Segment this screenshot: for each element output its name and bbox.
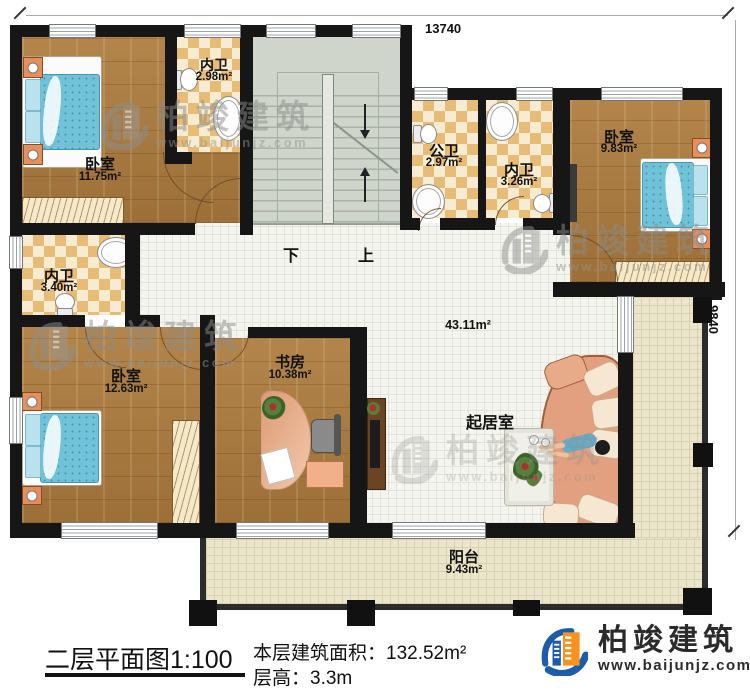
- floor-area-label: 本层建筑面积：: [253, 643, 386, 664]
- room-area: 10.38m²: [269, 369, 312, 381]
- pillow: [25, 79, 41, 111]
- room-area: 2.98m²: [196, 71, 232, 83]
- pillow: [25, 446, 41, 478]
- balcony-pillar: [693, 443, 713, 467]
- room-area: 43.11m²: [445, 318, 491, 332]
- wall: [553, 282, 725, 297]
- pillow: [25, 414, 41, 446]
- wall: [10, 223, 195, 235]
- window: [185, 25, 240, 37]
- wall: [710, 88, 722, 300]
- floor-area-value: 132.52m²: [386, 643, 466, 664]
- room-label: 起居室: [466, 409, 514, 433]
- floor-area-line: 本层建筑面积：132.52m²: [253, 638, 466, 665]
- room-area: 11.75m²: [79, 171, 121, 183]
- wall: [485, 523, 635, 538]
- dimension-tick: [728, 525, 741, 538]
- stairs-down-label: 下: [283, 242, 299, 266]
- wall: [400, 100, 412, 230]
- room-area: 3.40m²: [41, 282, 77, 294]
- room-area: 12.63m²: [105, 383, 148, 395]
- wall: [440, 218, 495, 230]
- balcony-wall: [200, 538, 206, 608]
- wall: [350, 338, 367, 523]
- window: [237, 523, 328, 538]
- plan-scale: 1:100: [170, 646, 233, 674]
- room-area: 3.26m²: [501, 176, 537, 188]
- pillow: [693, 165, 708, 195]
- balcony-pillar: [513, 600, 540, 616]
- window: [415, 88, 447, 100]
- company-website: www.baijunjz.com: [598, 657, 750, 674]
- dimension-tick: [14, 7, 27, 20]
- wall: [125, 315, 160, 327]
- top-dimension-line: [26, 15, 728, 16]
- balcony-pillar: [189, 600, 217, 626]
- floor-height-line: 层高：3.3m: [253, 663, 352, 690]
- window: [353, 25, 400, 37]
- wall: [553, 100, 570, 235]
- cup: [541, 438, 550, 447]
- side-table: [306, 461, 344, 488]
- sliding-door: [618, 297, 633, 352]
- wall: [10, 315, 85, 327]
- sliding-door: [393, 523, 485, 538]
- stair-rail: [322, 74, 334, 224]
- right-dimension-line: [735, 20, 736, 540]
- person-head: [595, 440, 610, 455]
- up-arrow-icon: [364, 176, 366, 202]
- pillow: [25, 111, 41, 143]
- dimension-right-value: 9840: [706, 305, 721, 334]
- plan-title: 二层平面图1:100: [45, 640, 233, 676]
- floor-height-label: 层高：: [253, 668, 310, 689]
- down-arrow-icon: [360, 130, 370, 139]
- room-area: 9.83m²: [601, 143, 637, 155]
- office-chair-back: [334, 414, 341, 456]
- cup: [529, 435, 539, 445]
- toilet: [533, 194, 551, 213]
- nightstand: [692, 229, 712, 249]
- window: [602, 88, 682, 100]
- up-arrow-icon: [360, 167, 370, 176]
- wall: [248, 327, 367, 338]
- down-arrow-icon: [364, 104, 366, 130]
- flowers: [513, 452, 543, 488]
- balcony-wall: [200, 604, 708, 610]
- window: [10, 398, 22, 443]
- wall: [367, 523, 393, 538]
- window: [62, 523, 157, 538]
- wall: [125, 235, 140, 327]
- plant: [367, 402, 380, 415]
- stairs-up-label: 上: [358, 242, 374, 266]
- plan-title-text: 二层平面图: [45, 646, 170, 674]
- wardrobe: [172, 420, 200, 525]
- nightstand: [692, 138, 712, 158]
- balcony-floor-right: [633, 297, 702, 538]
- window: [50, 25, 95, 37]
- pillow: [693, 196, 708, 226]
- dimension-top-value: 13740: [425, 21, 461, 36]
- window: [10, 237, 22, 268]
- wall: [478, 100, 486, 218]
- wall: [10, 25, 22, 538]
- company-name: 柏竣建筑: [598, 624, 750, 657]
- wall: [165, 37, 177, 152]
- nightstand: [22, 486, 42, 505]
- window: [517, 88, 552, 100]
- wall: [200, 315, 215, 538]
- tv-panel: [570, 164, 577, 222]
- nightstand: [23, 57, 43, 78]
- wall: [240, 37, 253, 235]
- balcony-pillar: [347, 600, 375, 626]
- room-area: 2.97m²: [426, 157, 462, 169]
- title-underline: [45, 673, 245, 677]
- wall: [165, 152, 192, 164]
- nightstand: [22, 392, 42, 411]
- company-logo-icon: [540, 624, 588, 676]
- floor-plan-canvas: 13740 9840 下 上: [0, 0, 750, 691]
- dimension-tick: [722, 7, 735, 20]
- wall: [412, 218, 420, 230]
- wall: [618, 352, 633, 523]
- window: [267, 25, 315, 37]
- plant: [262, 396, 286, 420]
- balcony-pillar: [683, 588, 712, 615]
- tv: [370, 420, 380, 468]
- company-logo: 柏竣建筑 www.baijunjz.com: [540, 624, 750, 676]
- sink: [486, 102, 518, 141]
- floor-height-value: 3.3m: [310, 668, 352, 689]
- room-area: 9.43m²: [446, 564, 482, 576]
- nightstand: [23, 144, 43, 165]
